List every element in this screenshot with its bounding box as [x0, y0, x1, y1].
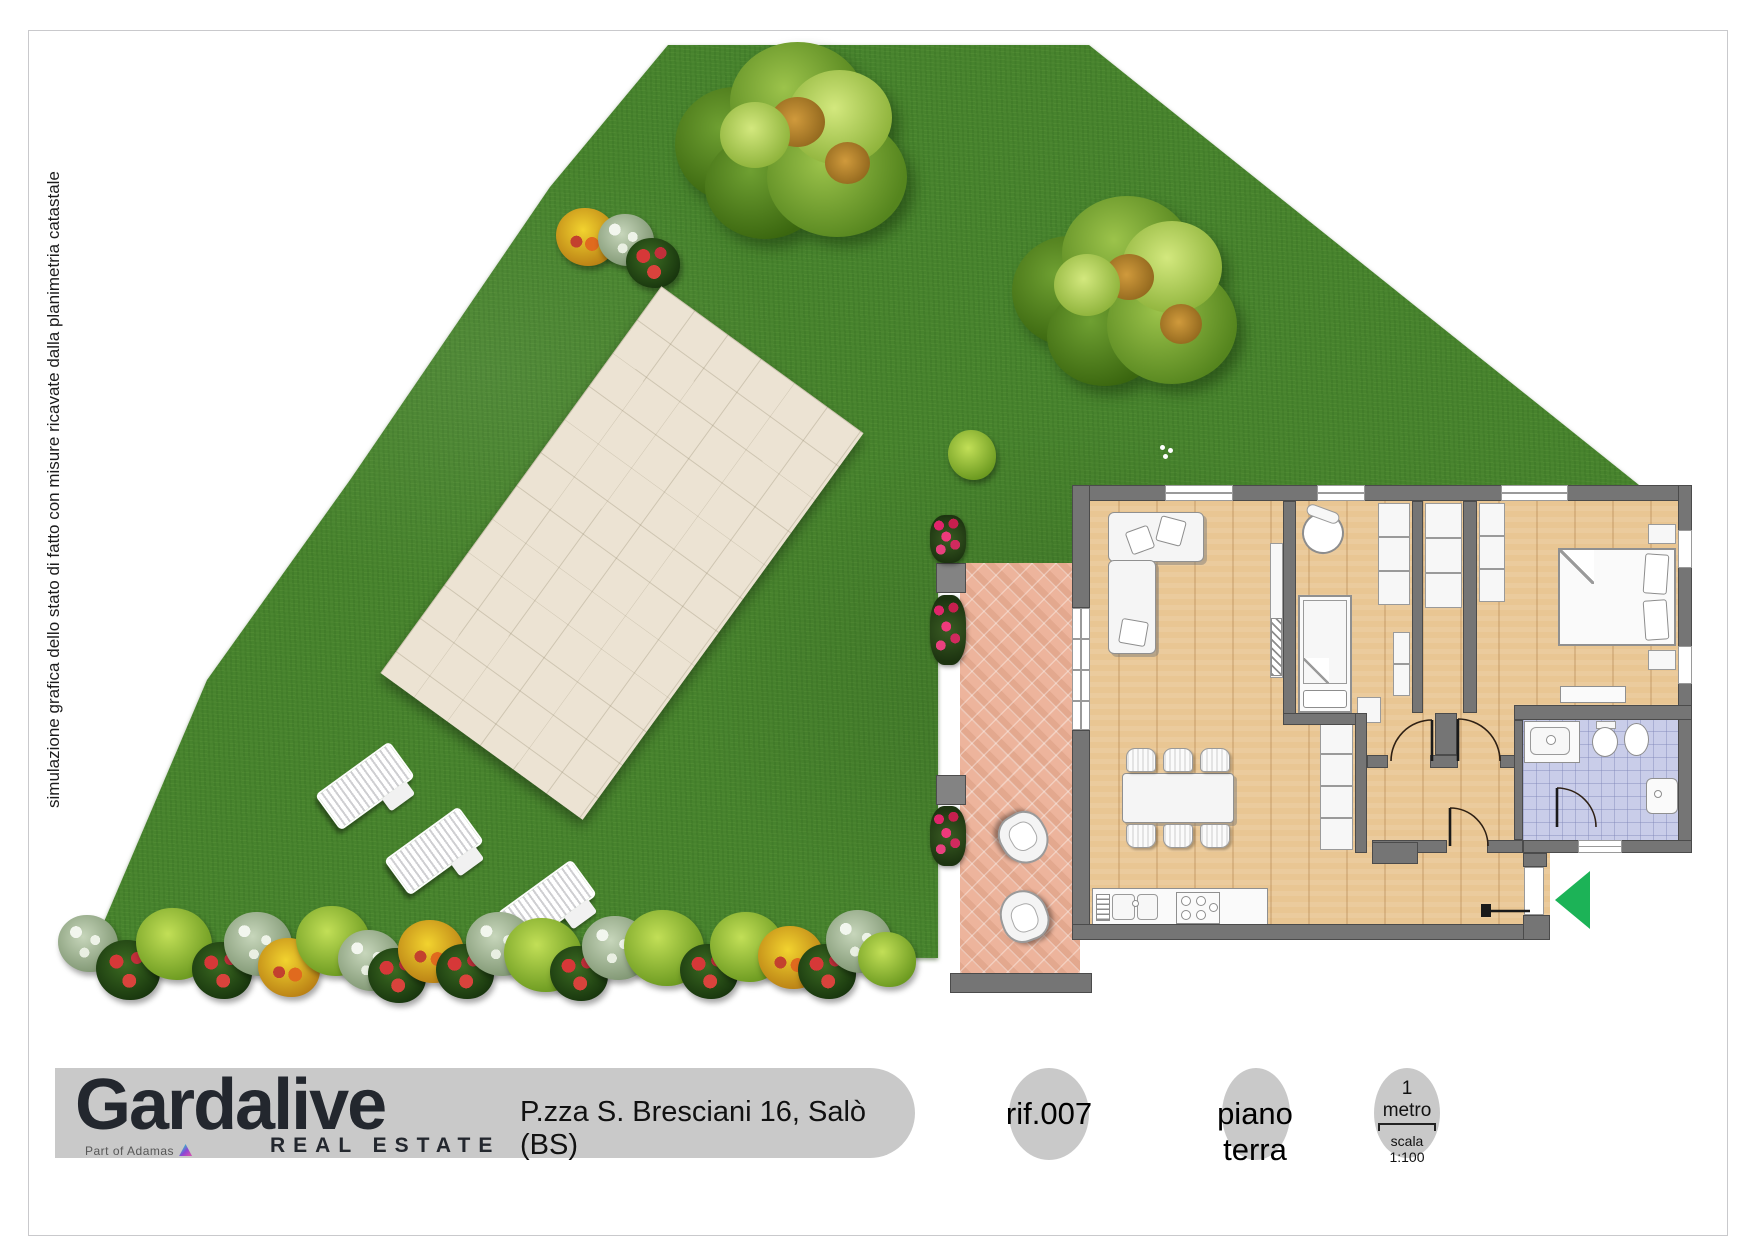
window	[1501, 485, 1568, 501]
faucet-icon	[1132, 900, 1139, 907]
bed-pillow	[1303, 690, 1347, 708]
hall-cabinet	[1320, 722, 1353, 754]
dining-chair	[1126, 748, 1156, 772]
wall	[1072, 730, 1090, 940]
wardrobe	[1479, 569, 1505, 602]
wardrobe	[1425, 538, 1462, 573]
dining-chair	[1163, 824, 1193, 848]
green-bush-icon	[948, 430, 996, 480]
hall-cabinet	[1320, 818, 1353, 850]
wardrobe	[1425, 503, 1462, 538]
wall	[1523, 915, 1550, 940]
window	[1678, 530, 1692, 568]
wardrobe	[1479, 536, 1505, 569]
burner-icon	[1181, 910, 1191, 920]
hall-cabinet	[1320, 786, 1353, 818]
wall	[1283, 501, 1296, 725]
washbasin-2	[1646, 778, 1678, 814]
wall	[1367, 755, 1388, 768]
terrace-wall	[950, 973, 1092, 993]
blanket-fold	[1303, 658, 1329, 684]
sliding-door	[1072, 608, 1090, 730]
flower-bed	[930, 806, 966, 866]
wall	[1072, 924, 1550, 940]
toilet	[1592, 727, 1618, 757]
wall	[1412, 501, 1423, 713]
floor-label: piano terra	[1190, 1096, 1320, 1168]
dining-table	[1122, 773, 1234, 823]
kitchen-sink	[1112, 894, 1135, 920]
kitchen-drainer	[1096, 894, 1110, 921]
scale-ratio-label: scala 1:100	[1376, 1133, 1438, 1165]
dining-chair	[1200, 748, 1230, 772]
wardrobe	[1425, 573, 1462, 608]
hall-cabinet	[1320, 754, 1353, 786]
sofa-pillow	[1118, 618, 1149, 647]
wardrobe	[1378, 571, 1410, 605]
green-bush-icon	[858, 932, 916, 987]
terrace-pillar	[936, 775, 966, 805]
adamas-logo-icon	[179, 1144, 192, 1156]
bed-pillow	[1643, 553, 1670, 595]
tree-icon	[675, 42, 910, 242]
dresser	[1560, 686, 1626, 703]
wall	[1487, 840, 1523, 853]
wall	[1514, 705, 1692, 720]
wardrobe	[1393, 664, 1410, 696]
faucet-icon	[1546, 735, 1556, 745]
window	[1165, 485, 1233, 501]
entrance-door-panel	[1524, 867, 1544, 915]
burner-icon	[1181, 896, 1191, 906]
burner-icon	[1196, 896, 1206, 906]
window	[1578, 840, 1622, 853]
footer-bar: Gardalive REAL ESTATE Part of Adamas P.z…	[55, 1068, 915, 1158]
faucet-icon	[1654, 790, 1662, 798]
plan-page: simulazione grafica dello stato di fatto…	[0, 0, 1754, 1241]
nightstand	[1648, 524, 1676, 544]
nightstand	[1648, 650, 1676, 670]
burner-icon	[1209, 903, 1218, 912]
dining-chair	[1126, 824, 1156, 848]
wall	[1514, 720, 1523, 840]
wardrobe	[1393, 632, 1410, 664]
wardrobe	[1378, 537, 1410, 571]
wall	[1355, 713, 1367, 853]
wall	[1072, 485, 1090, 608]
daisy-flowers-icon	[1160, 445, 1165, 450]
brand-subtext: Part of Adamas	[85, 1144, 192, 1158]
property-address: P.zza S. Bresciani 16, Salò (BS)	[520, 1096, 915, 1162]
window	[1678, 646, 1692, 684]
wall	[1523, 853, 1547, 867]
outside-area	[1550, 853, 1680, 940]
red-flower-bush-icon	[626, 238, 680, 288]
scale-length-label: 1 metro	[1376, 1078, 1438, 1122]
scale-bar-icon	[1378, 1123, 1436, 1131]
wall	[1463, 501, 1477, 713]
wall	[1430, 755, 1458, 768]
bed-pillow	[1643, 599, 1670, 641]
brand-tagline: REAL ESTATE	[270, 1134, 500, 1158]
wardrobe	[1378, 503, 1410, 537]
window	[1317, 485, 1365, 501]
kitchen-sink	[1137, 894, 1158, 920]
flower-bed	[930, 515, 966, 563]
burner-icon	[1196, 910, 1206, 920]
dining-chair	[1163, 748, 1193, 772]
tree-icon	[1012, 196, 1237, 396]
wall	[1435, 713, 1457, 755]
terrace-pillar	[936, 563, 966, 593]
reference-badge: rif.007	[1009, 1068, 1089, 1160]
flower-bed	[930, 595, 966, 665]
bidet	[1624, 723, 1649, 756]
blanket-fold	[1560, 550, 1594, 584]
scale-widget: 1 metro scala 1:100	[1376, 1078, 1438, 1165]
wardrobe	[1479, 503, 1505, 536]
dining-chair	[1200, 824, 1230, 848]
wall	[1372, 842, 1418, 864]
tv-icon	[1271, 618, 1282, 676]
